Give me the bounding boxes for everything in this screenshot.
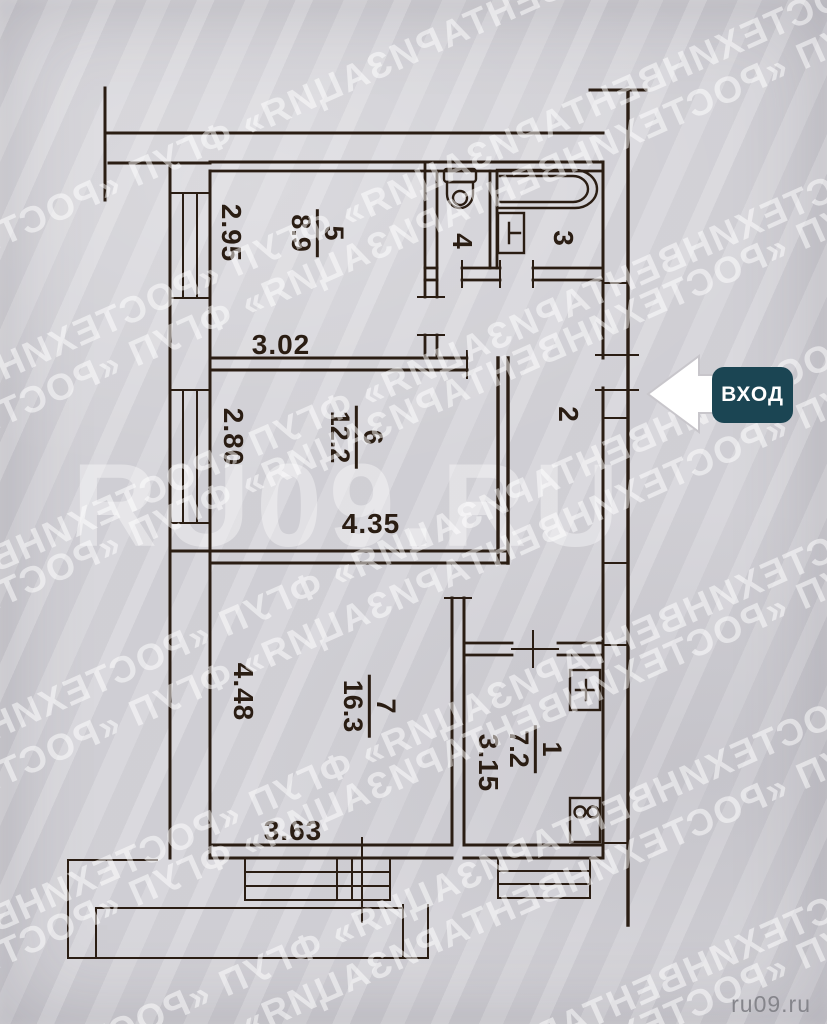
floor-plan-scan: RU09.RU: [0, 0, 827, 1024]
entrance-arrow-icon: [0, 0, 827, 1024]
site-watermark: ru09.ru: [731, 991, 811, 1018]
entrance-badge: ВХОД: [712, 367, 793, 423]
